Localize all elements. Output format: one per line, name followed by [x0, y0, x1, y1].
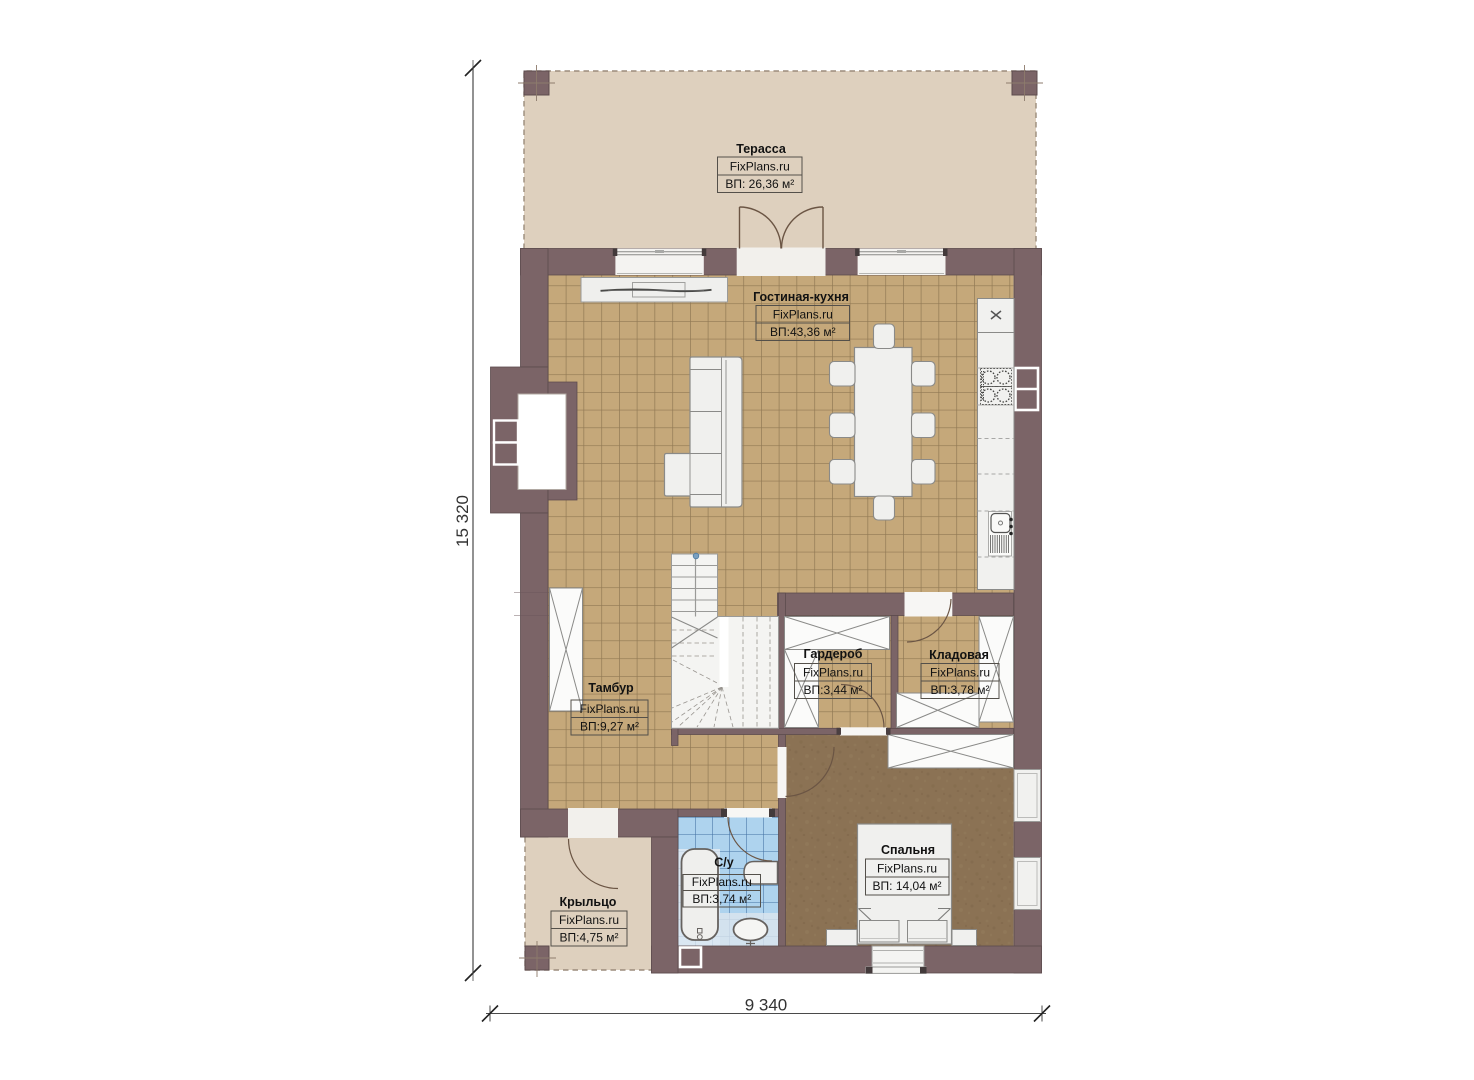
- svg-text:ВП: 26,36 м²: ВП: 26,36 м²: [725, 177, 794, 191]
- svg-text:ВП: 14,04 м²: ВП: 14,04 м²: [873, 879, 942, 893]
- svg-text:FixPlans.ru: FixPlans.ru: [730, 160, 790, 174]
- svg-text:FixPlans.ru: FixPlans.ru: [930, 666, 990, 680]
- svg-text:FixPlans.ru: FixPlans.ru: [877, 862, 937, 876]
- svg-text:15 320: 15 320: [453, 495, 472, 547]
- svg-text:ВП:3,78 м²: ВП:3,78 м²: [931, 683, 990, 697]
- svg-text:ВП:3,74 м²: ВП:3,74 м²: [692, 892, 751, 906]
- svg-text:9 340: 9 340: [745, 996, 788, 1015]
- svg-text:FixPlans.ru: FixPlans.ru: [803, 666, 863, 680]
- svg-text:ВП:9,27 м²: ВП:9,27 м²: [580, 720, 639, 734]
- svg-text:Гостиная-кухня: Гостиная-кухня: [753, 290, 849, 304]
- svg-text:ВП:4,75 м²: ВП:4,75 м²: [560, 931, 619, 945]
- svg-text:С/у: С/у: [714, 856, 734, 870]
- svg-text:FixPlans.ru: FixPlans.ru: [692, 875, 752, 889]
- svg-text:ВП:43,36 м²: ВП:43,36 м²: [770, 325, 836, 339]
- svg-text:Крыльцо: Крыльцо: [560, 895, 617, 909]
- svg-text:FixPlans.ru: FixPlans.ru: [773, 308, 833, 322]
- svg-text:ВП:3,44 м²: ВП:3,44 м²: [804, 683, 863, 697]
- svg-text:Гардероб: Гардероб: [803, 647, 862, 661]
- svg-text:Тамбур: Тамбур: [588, 681, 634, 695]
- svg-text:Терасса: Терасса: [736, 142, 787, 156]
- svg-text:FixPlans.ru: FixPlans.ru: [579, 702, 639, 716]
- svg-text:Спальня: Спальня: [881, 843, 935, 857]
- svg-text:FixPlans.ru: FixPlans.ru: [559, 913, 619, 927]
- svg-text:Кладовая: Кладовая: [929, 648, 989, 662]
